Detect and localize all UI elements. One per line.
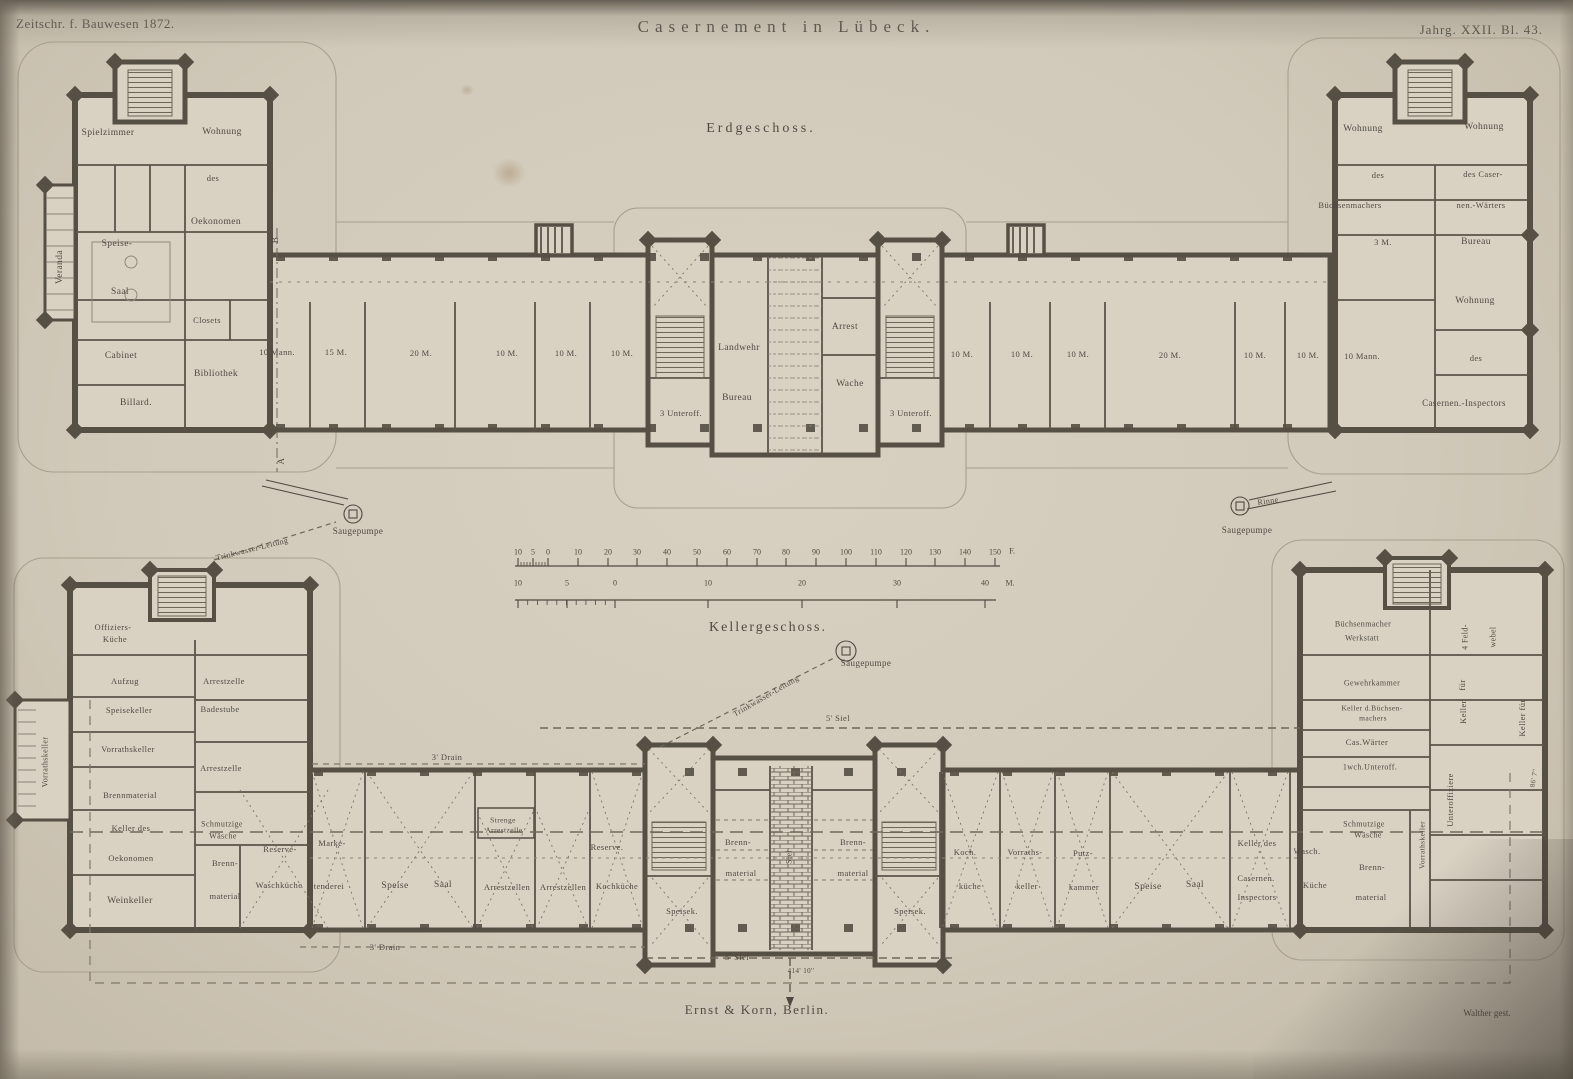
engraver-credit: Walther gest. — [1463, 1008, 1510, 1018]
publisher-credit: Ernst & Korn, Berlin. — [685, 1002, 830, 1018]
scanned-plate: Zeitschr. f. Bauwesen 1872. Casernement … — [0, 0, 1573, 1079]
pump-symbols — [262, 480, 1336, 661]
plate-reference: Jahrg. XXII. Bl. 43. — [1420, 22, 1543, 38]
plate-title: Casernement in Lübeck. — [638, 17, 936, 37]
journal-reference: Zeitschr. f. Bauwesen 1872. — [16, 16, 175, 32]
scale-bars — [515, 558, 1000, 608]
suction-pump-icon — [836, 641, 856, 661]
suction-pump-icon — [1231, 482, 1336, 515]
floor-plans-drawing — [0, 0, 1573, 1079]
suction-pump-icon — [262, 480, 362, 523]
